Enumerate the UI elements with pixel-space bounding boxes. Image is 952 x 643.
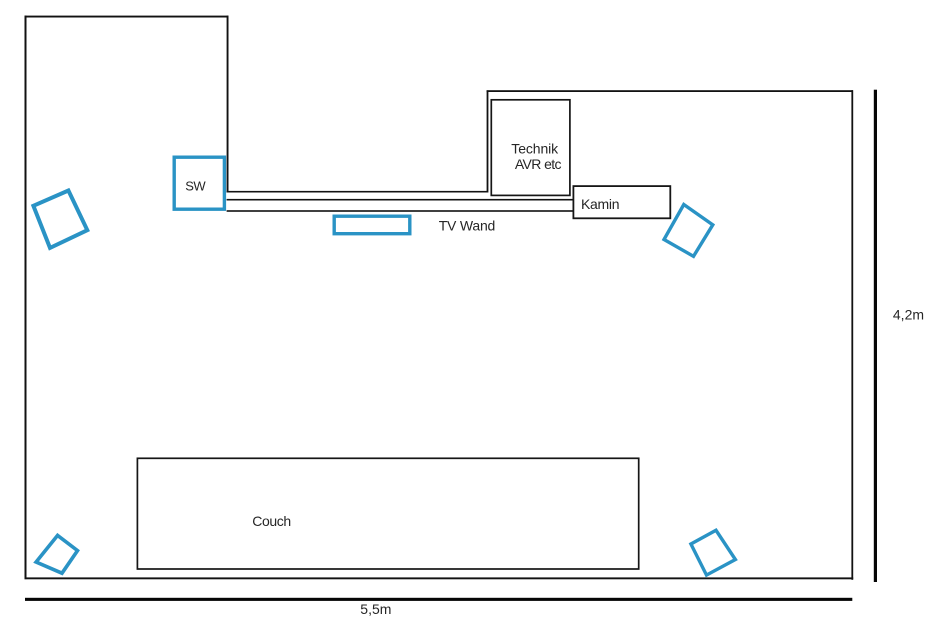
svg-text:Technik: Technik [511,140,559,156]
svg-text:Couch: Couch [252,513,290,529]
svg-text:Kamin: Kamin [581,196,619,212]
svg-text:5,5m: 5,5m [360,601,391,617]
svg-text:SW: SW [185,179,206,194]
svg-text:TV Wand: TV Wand [439,217,495,233]
svg-text:4,2m: 4,2m [893,307,924,323]
svg-text:AVR etc: AVR etc [515,156,562,172]
